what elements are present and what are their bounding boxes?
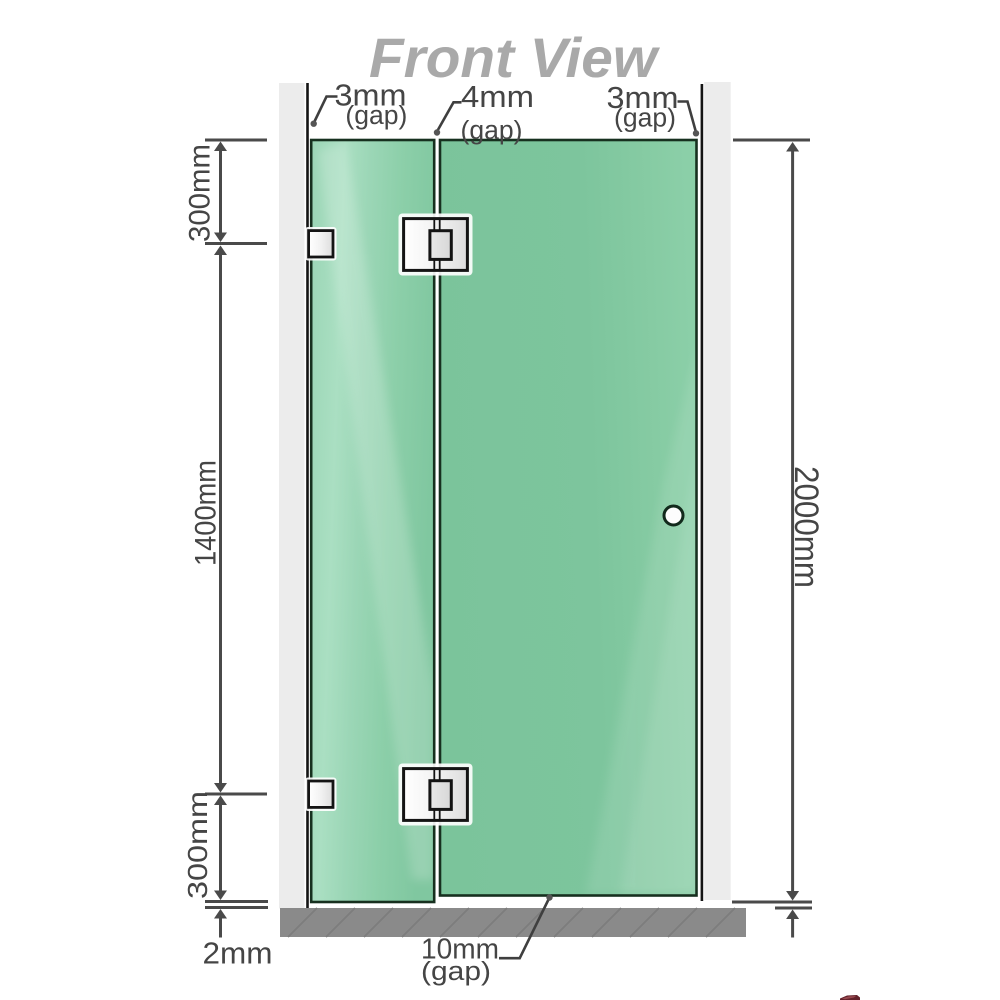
svg-text:(gap): (gap) [421,958,491,986]
svg-text:300mm: 300mm [182,791,213,899]
svg-text:1400mm: 1400mm [190,460,223,566]
svg-text:(gap): (gap) [461,117,523,145]
svg-text:300mm: 300mm [184,144,217,242]
svg-text:(gap): (gap) [614,104,676,132]
svg-text:(gap): (gap) [345,102,407,130]
svg-text:2mm: 2mm [203,937,273,971]
svg-text:2000mm: 2000mm [787,466,825,588]
svg-text:4mm: 4mm [461,79,534,114]
